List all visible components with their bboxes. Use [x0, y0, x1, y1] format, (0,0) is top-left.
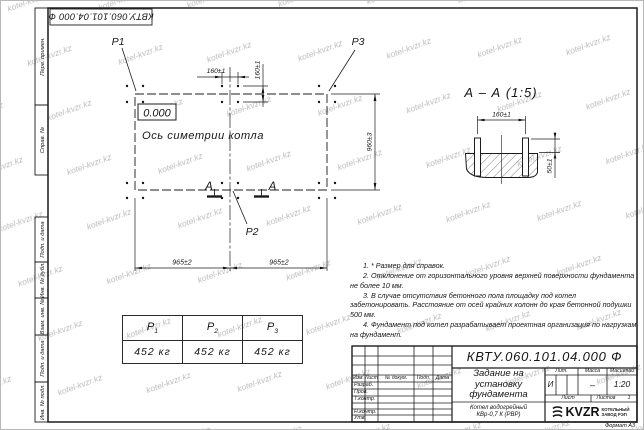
- tb-row-razrab: Разраб.: [354, 382, 400, 389]
- doc-number: КВТУ.060.101.04.000 Ф: [452, 346, 637, 368]
- tb-col-izm: Изм.: [352, 375, 365, 382]
- anchor-bolt-left: [475, 138, 481, 176]
- strip-label-inv-dubl: Инв. № дубл.: [40, 262, 46, 298]
- loads-value-p3: 452 кг: [243, 341, 303, 364]
- section-letter-right: А: [268, 181, 277, 193]
- elevation-value: 0.000: [143, 108, 171, 120]
- tb-row-tkontr: Т.контр.: [354, 396, 400, 403]
- section-dim-protrusion: 50±1: [547, 158, 554, 173]
- tb-lit-value: И: [545, 375, 556, 395]
- load-point-p2-label: P2: [246, 226, 259, 238]
- loads-value-p2: 452 кг: [183, 341, 243, 364]
- tb-listov-label: Листов: [591, 395, 621, 402]
- strip-label-vzam-inv: Взам. инв. №: [40, 299, 46, 335]
- tb-col-list: Лист: [365, 375, 378, 382]
- note-2: 2. Отклонение от горизонтального уровня …: [350, 271, 637, 290]
- strip-label-sprav-no: Справ. №: [40, 127, 46, 153]
- loads-table: P1 P2 P3 452 кг 452 кг 452 кг: [122, 315, 303, 364]
- tb-row-utv: Утв.: [354, 415, 400, 422]
- drawing-subtitle: Котел водогрейный КВр-0,7 К (РВР): [452, 402, 545, 422]
- section-dim-bolt-spacing: 160±1: [492, 112, 511, 119]
- drawing-sheet: kotel-kvzr.kz kotel-kvzr.kz Перв. примен…: [0, 0, 644, 430]
- strip-label-perv-primen: Перв. примен.: [40, 37, 46, 76]
- top-stamp-text: КВТУ.060.101.04.000 Ф: [48, 12, 154, 22]
- axis-label: Ось симетрии котла: [142, 130, 264, 142]
- tb-massa-value: –: [578, 375, 607, 395]
- tb-masshtab-value: 1:20: [607, 375, 637, 395]
- loads-value-p1: 452 кг: [123, 341, 183, 364]
- loads-header-p1: P1: [123, 316, 183, 341]
- tb-col-dokum: № докум.: [378, 375, 414, 382]
- dim-bolt-x: 160±1: [207, 68, 226, 75]
- load-point-p1-label: P1: [112, 36, 125, 48]
- kvzr-logo-icon: [552, 406, 563, 419]
- tb-listov-value: 1: [621, 395, 637, 402]
- note-4: 4. Фундамент под котел разрабатывает про…: [350, 320, 637, 339]
- tb-lit-label: Лит.: [545, 368, 578, 375]
- tb-row-prov: Пров.: [354, 389, 400, 396]
- section-title: А – А (1:5): [463, 85, 537, 100]
- tb-masshtab-label: Масштаб: [607, 368, 637, 375]
- tb-massa-label: Масса: [578, 368, 607, 375]
- strip-label-inv-podl: Инв. № подл.: [40, 384, 46, 420]
- loads-header-p2: P2: [183, 316, 243, 341]
- loads-header-p3: P3: [243, 316, 303, 341]
- dim-height: 960±3: [367, 132, 374, 151]
- dim-width-right: 965±2: [269, 260, 289, 267]
- tb-col-podp: Подп.: [414, 375, 433, 382]
- company-logo-block: KVZR КОТЕЛЬНЫЙ ЗАВОД РЭП: [545, 402, 637, 422]
- note-3: 3. В случае отсутствия бетонного пола пл…: [350, 291, 637, 319]
- notes-block: 1. * Размер для справок. 2. Отклонение о…: [350, 261, 637, 340]
- tb-col-data: Дата: [433, 375, 452, 382]
- section-letter-left: А: [204, 181, 213, 193]
- company-logo-text: KVZR: [565, 405, 599, 419]
- note-1: 1. * Размер для справок.: [350, 261, 637, 270]
- strip-label-podp-data-2: Подп. и дата: [40, 340, 46, 377]
- anchor-bolt-right: [523, 138, 529, 176]
- company-name: КОТЕЛЬНЫЙ ЗАВОД РЭП: [602, 407, 630, 418]
- load-point-p3-label: P3: [352, 36, 365, 48]
- strip-label-podp-data-1: Подп. и дата: [40, 221, 46, 258]
- format-label: Формат А3: [580, 422, 644, 430]
- loads-table-value-row: 452 кг 452 кг 452 кг: [123, 341, 303, 364]
- dim-width-left: 965±2: [172, 260, 192, 267]
- drawing-title: Задание на установку фундамента: [452, 368, 545, 402]
- tb-list-label: Лист: [545, 395, 591, 402]
- loads-table-header-row: P1 P2 P3: [123, 316, 303, 341]
- dim-bolt-y: 160±1: [255, 60, 262, 79]
